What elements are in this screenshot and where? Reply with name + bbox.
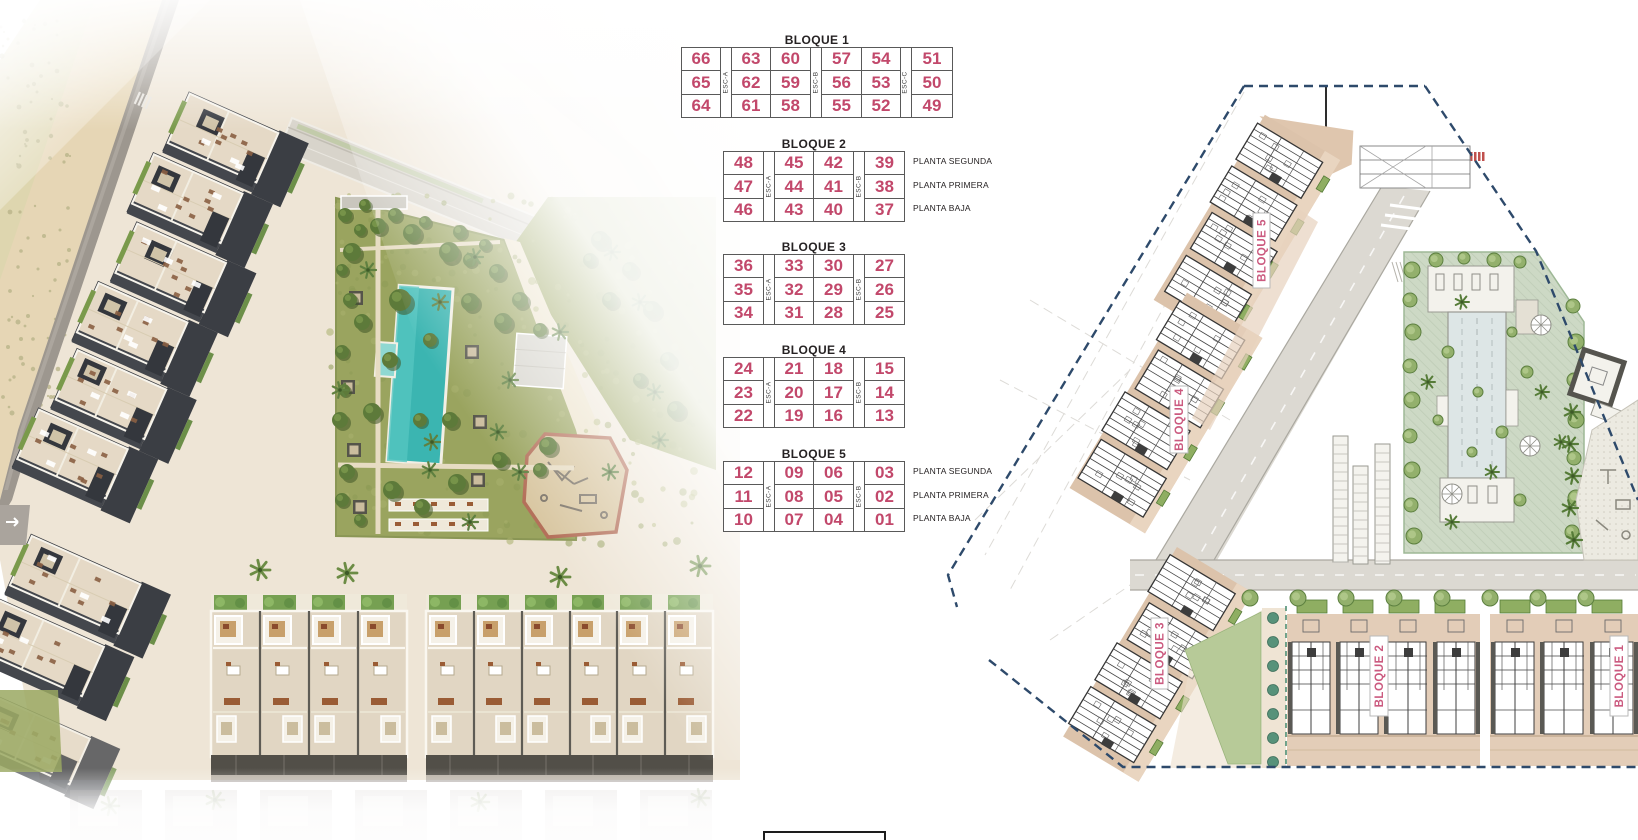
svg-text:BLOQUE 2: BLOQUE 2 [1374, 645, 1386, 708]
svg-text:BLOQUE 4: BLOQUE 4 [1174, 388, 1186, 451]
svg-text:BLOQUE 3: BLOQUE 3 [1155, 622, 1167, 685]
svg-text:BLOQUE 5: BLOQUE 5 [1257, 219, 1269, 282]
svg-text:BLOQUE 1: BLOQUE 1 [1614, 645, 1626, 708]
